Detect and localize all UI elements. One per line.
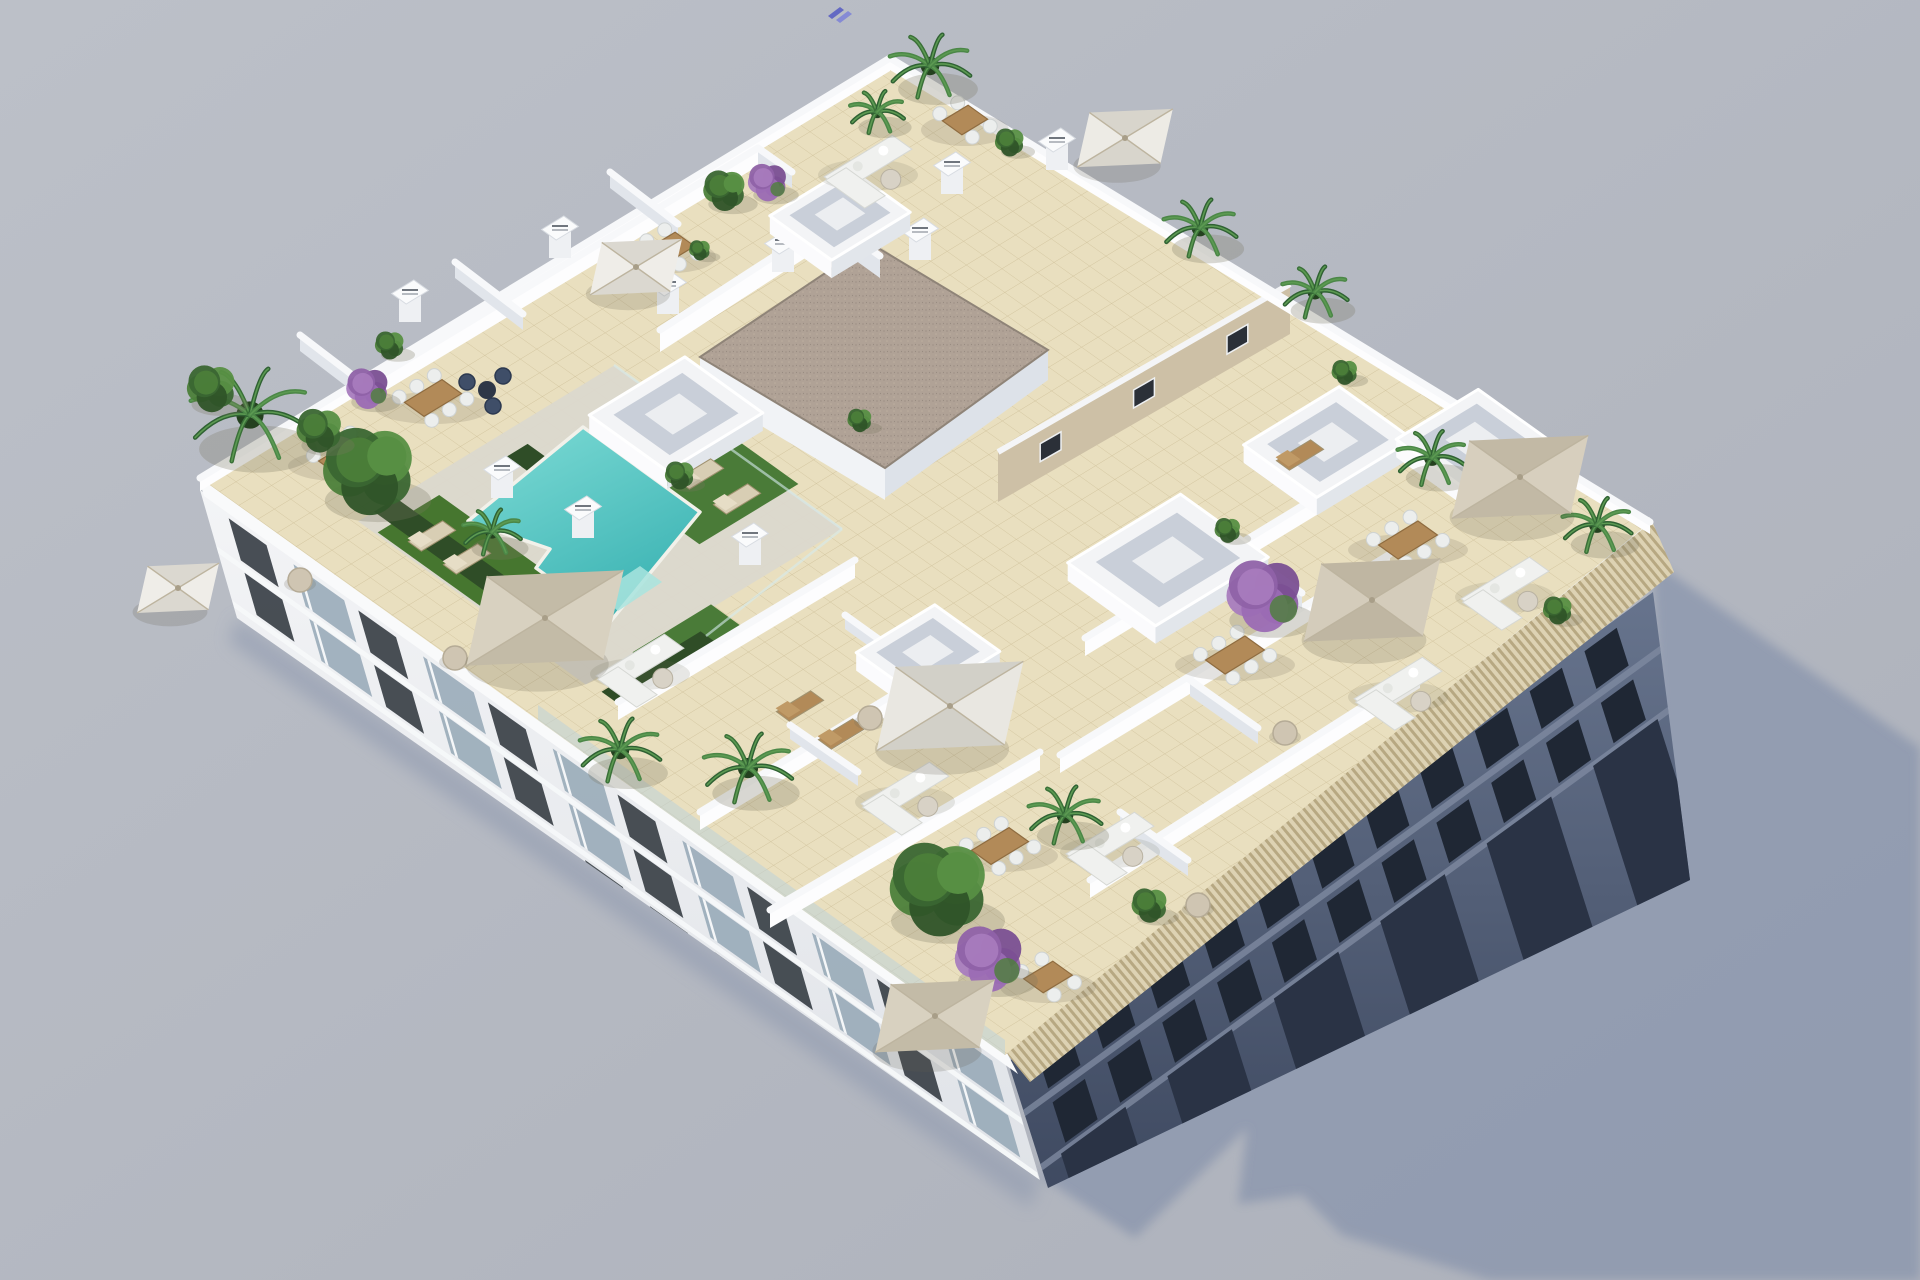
parasol — [1302, 558, 1441, 664]
parasol — [1073, 109, 1173, 183]
parasol — [875, 661, 1024, 775]
render-canvas — [0, 0, 1920, 1280]
building-aerial-render — [0, 0, 1920, 1280]
parasol — [1450, 435, 1589, 541]
parasol — [465, 570, 623, 691]
parasol — [872, 980, 994, 1072]
